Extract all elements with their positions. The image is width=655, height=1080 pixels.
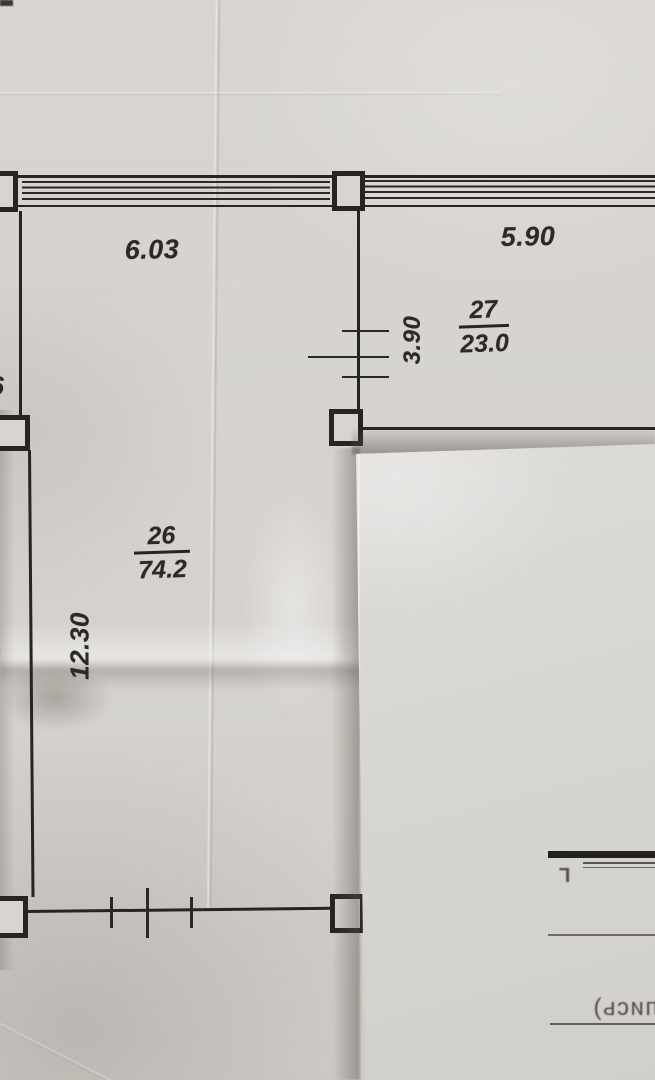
column-marker-top-mid: [332, 171, 365, 211]
column-marker-mid-left: [0, 415, 30, 451]
column-marker-top-left: [0, 171, 18, 212]
dimension-tick: [342, 376, 389, 379]
wall-bottom: [26, 907, 332, 913]
window-glazing-left: [22, 181, 330, 201]
corner-mark: [0, 0, 13, 6]
overlay-thick-rule: [548, 851, 655, 858]
overlay-paper-sheet: Г пись): [340, 438, 655, 1080]
wall-left-upper: [19, 211, 22, 417]
horizontal-crease-top: [0, 92, 500, 95]
room-number: 27: [469, 296, 498, 323]
overlay-signature-line: [548, 934, 655, 936]
wall-mid-vertical: [357, 210, 360, 411]
overlay-shadow-left: [332, 448, 360, 1080]
left-edge-shadow: [0, 410, 14, 970]
floor-plan-photo: 6.03 5.90 3.90 12.30 6 27 23.0 26 74.2 Г…: [0, 0, 655, 1080]
bleed-through-word: пись): [592, 994, 655, 1022]
room-area: 23.0: [460, 329, 510, 358]
room-fraction-line: [134, 550, 190, 555]
window-glazing-right: [365, 180, 655, 200]
diagonal-crease: [0, 1008, 176, 1080]
dimension-label-12-30: 12.30: [65, 612, 96, 680]
bleed-through-letter: Г: [559, 865, 570, 888]
overlay-signature-line: [550, 1023, 655, 1025]
column-marker-bottom-left: [0, 896, 28, 938]
room-number-fragment: 6: [0, 371, 4, 402]
room-label-27: 27 23.0: [458, 296, 510, 358]
dimension-label-5-90: 5.90: [500, 221, 555, 253]
room-number: 26: [147, 522, 176, 549]
room-fraction-line: [459, 324, 509, 328]
vertical-crease: [207, 0, 220, 908]
dimension-tick: [190, 897, 193, 928]
dimension-tick: [110, 897, 113, 928]
dimension-tick: [308, 356, 389, 359]
room-label-26: 26 74.2: [133, 522, 191, 585]
overlay-thin-rule: [583, 862, 655, 864]
bleed-through-word-text: пись): [592, 994, 655, 1022]
dimension-label-6-03: 6.03: [124, 234, 179, 266]
room-area: 74.2: [138, 555, 188, 584]
dimension-tick: [342, 330, 389, 333]
overlay-thin-rule: [583, 867, 655, 869]
dimension-label-3-90: 3.90: [399, 316, 427, 365]
horizontal-crease-mid: [0, 286, 238, 288]
dimension-tick: [146, 888, 149, 938]
